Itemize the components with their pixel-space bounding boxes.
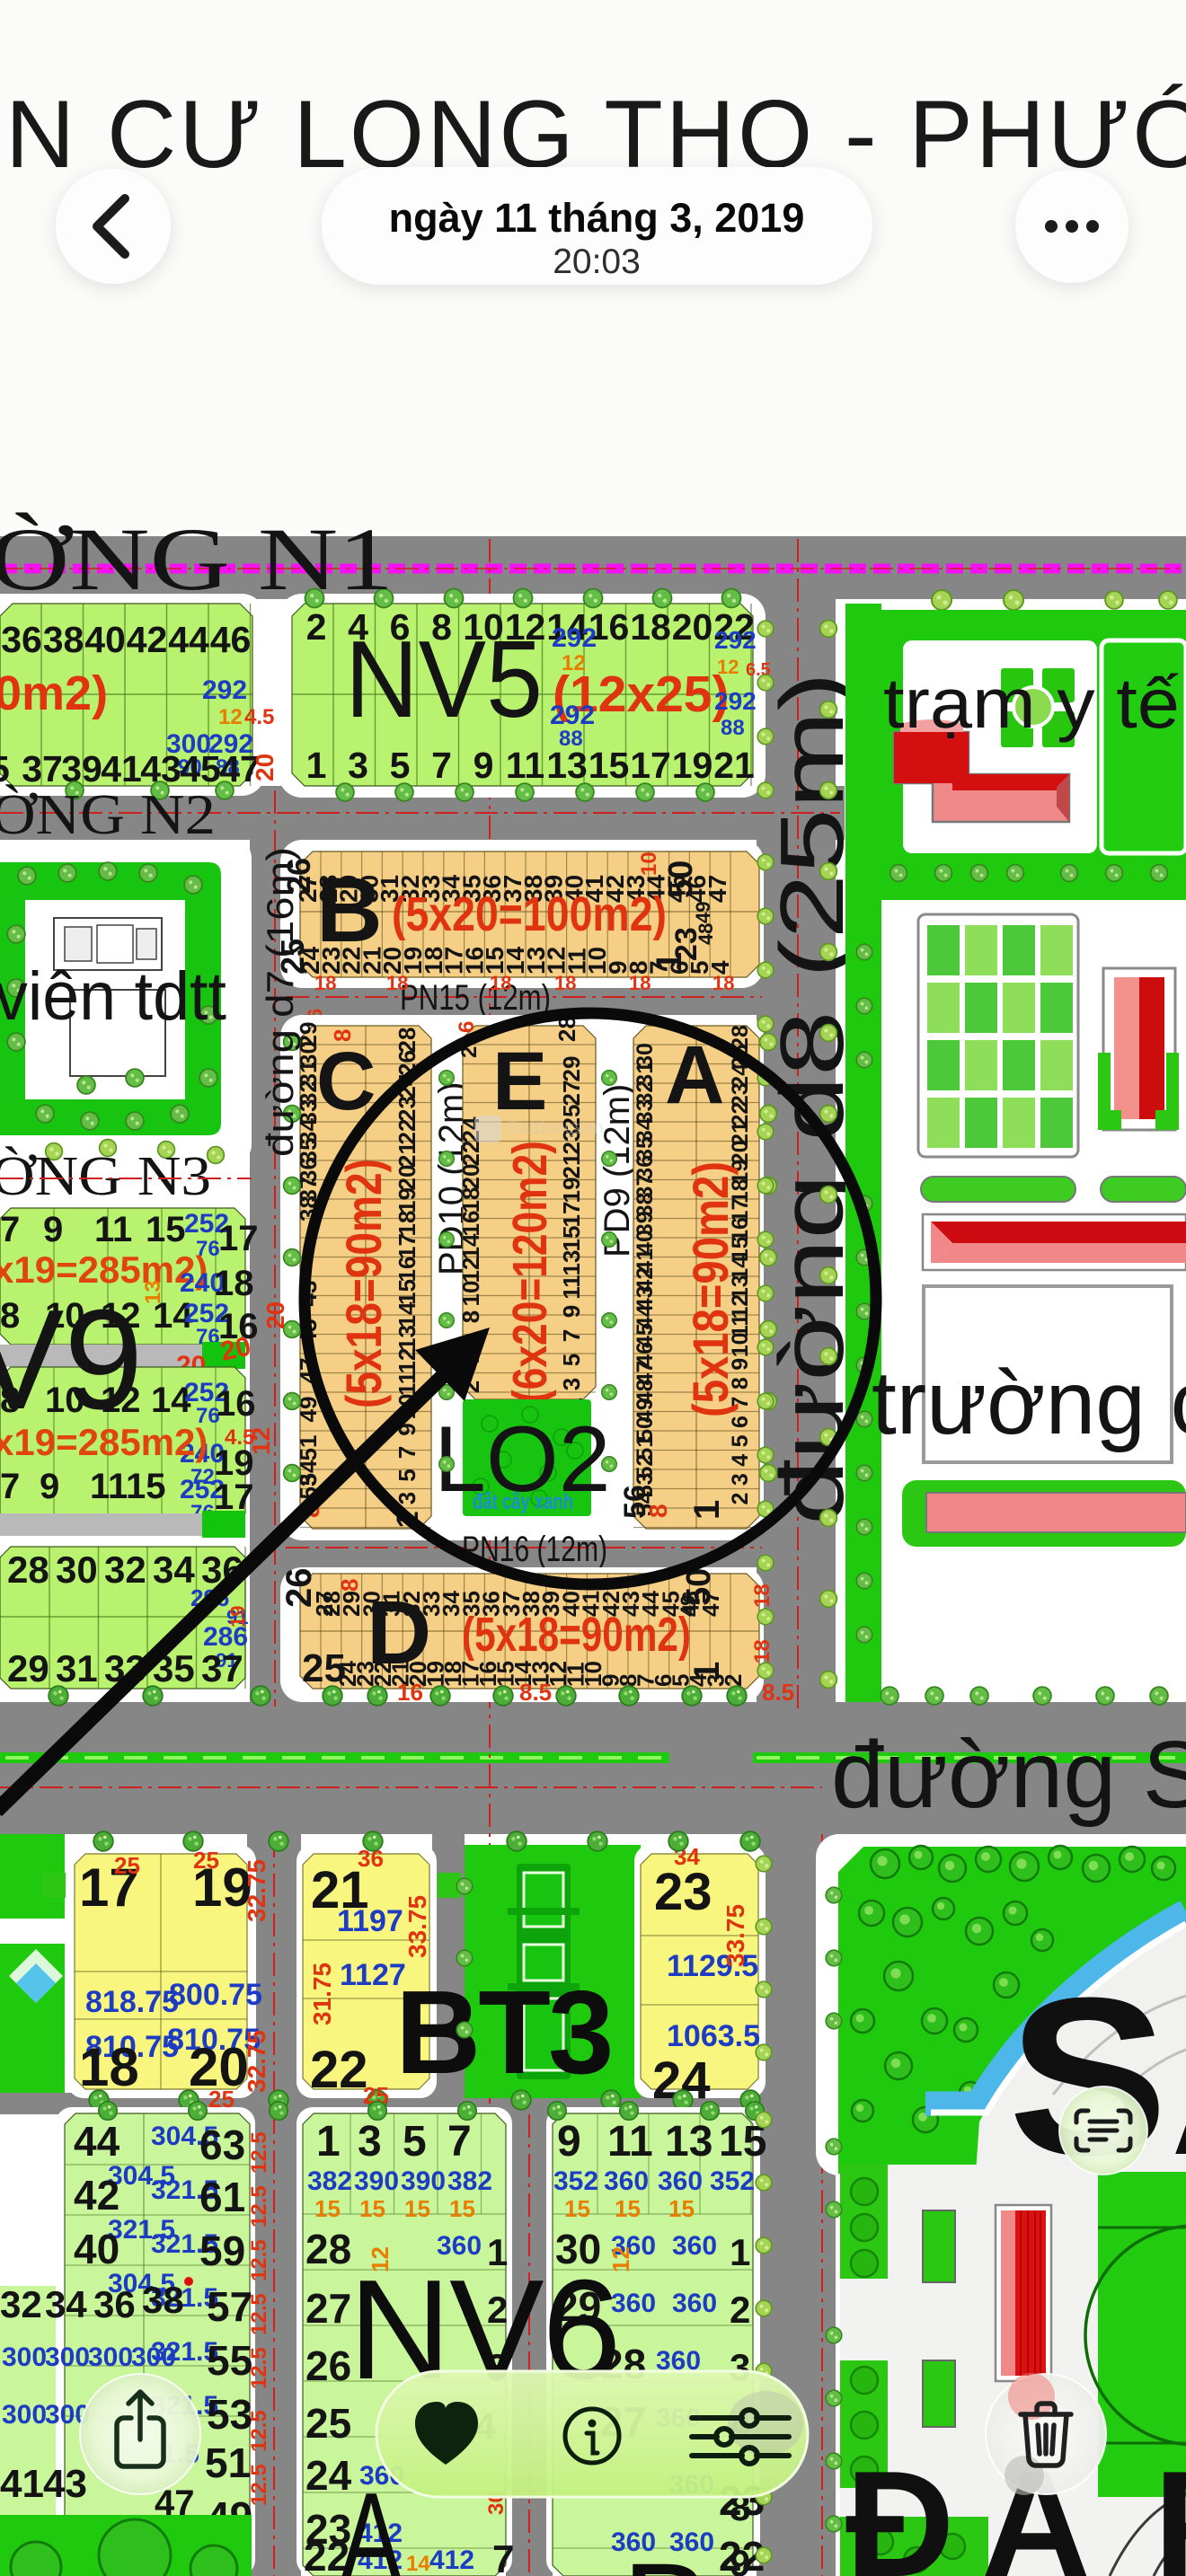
svg-text:33.75: 33.75: [721, 1904, 749, 1967]
svg-text:352: 352: [710, 2166, 755, 2196]
svg-text:28: 28: [7, 1548, 49, 1591]
svg-text:41: 41: [0, 2462, 44, 2506]
svg-text:B: B: [316, 859, 383, 961]
svg-text:88: 88: [721, 716, 745, 740]
svg-text:11: 11: [94, 1210, 132, 1249]
svg-text:16: 16: [397, 1679, 423, 1706]
svg-text:9: 9: [474, 745, 494, 786]
svg-text:5: 5: [403, 2118, 427, 2166]
svg-text:292: 292: [552, 623, 597, 653]
svg-text:19: 19: [558, 1178, 585, 1204]
svg-text:20: 20: [457, 1164, 484, 1190]
svg-text:46: 46: [210, 619, 252, 660]
svg-text:12.5: 12.5: [247, 2347, 271, 2389]
svg-text:12: 12: [218, 705, 243, 729]
svg-text:2: 2: [730, 2289, 750, 2331]
svg-text:18: 18: [79, 2037, 139, 2097]
svg-text:14: 14: [457, 1233, 484, 1259]
svg-text:x19=285m2): x19=285m2): [0, 1421, 208, 1463]
svg-text:18: 18: [554, 972, 576, 994]
svg-text:382: 382: [447, 2166, 492, 2196]
svg-text:32.75: 32.75: [243, 1859, 270, 1922]
svg-text:(5x18=90m2): (5x18=90m2): [462, 1608, 691, 1662]
svg-text:18: 18: [314, 972, 336, 994]
svg-text:51: 51: [205, 2439, 251, 2486]
svg-text:3: 3: [558, 1378, 585, 1390]
svg-text:38: 38: [43, 619, 84, 660]
svg-text:đất cây xanh: đất cây xanh: [473, 1489, 573, 1514]
svg-text:49: 49: [692, 902, 714, 923]
svg-text:48: 48: [695, 923, 717, 945]
svg-text:17: 17: [394, 1233, 420, 1259]
svg-text:17: 17: [558, 1202, 585, 1228]
svg-text:16: 16: [457, 1211, 484, 1237]
svg-text:9: 9: [43, 1210, 63, 1249]
svg-text:43: 43: [43, 2462, 87, 2506]
svg-text:32: 32: [104, 1548, 146, 1591]
svg-text:22: 22: [394, 1119, 420, 1145]
svg-text:viên tdtt: viên tdtt: [0, 958, 226, 1035]
svg-text:42: 42: [127, 619, 168, 660]
svg-text:8: 8: [0, 1381, 20, 1420]
svg-text:29: 29: [7, 1647, 49, 1689]
svg-text:22: 22: [310, 2041, 368, 2099]
svg-text:15: 15: [564, 2195, 590, 2222]
svg-text:18: 18: [490, 972, 511, 994]
svg-text:28: 28: [305, 2226, 351, 2272]
svg-text:(5x20=100m2): (5x20=100m2): [392, 887, 667, 941]
svg-text:31: 31: [56, 1647, 98, 1689]
svg-text:8: 8: [329, 1029, 356, 1042]
svg-text:12.5: 12.5: [247, 2464, 271, 2506]
svg-text:7: 7: [492, 2537, 514, 2576]
svg-text:19: 19: [226, 1606, 249, 1628]
svg-text:17: 17: [630, 745, 671, 786]
svg-text:360: 360: [672, 2231, 717, 2261]
svg-text:B: B: [622, 2535, 712, 2576]
svg-text:15: 15: [589, 745, 630, 786]
svg-text:12.5: 12.5: [247, 2239, 271, 2281]
svg-text:14: 14: [406, 2552, 430, 2576]
svg-text:trường c: trường c: [872, 1353, 1186, 1453]
svg-text:5: 5: [728, 1434, 753, 1447]
svg-text:NV5: NV5: [345, 618, 543, 740]
svg-text:25: 25: [305, 2400, 351, 2447]
svg-text:18: 18: [214, 1264, 254, 1303]
svg-text:20: 20: [394, 1165, 420, 1191]
svg-text:20: 20: [218, 1332, 254, 1367]
svg-text:16: 16: [216, 1384, 256, 1424]
svg-text:18: 18: [394, 1211, 420, 1237]
svg-text:15: 15: [668, 2195, 695, 2222]
svg-text:(5x18=90m2): (5x18=90m2): [682, 1161, 739, 1417]
svg-text:7: 7: [431, 745, 452, 786]
svg-text:300: 300: [131, 2342, 176, 2372]
svg-text:12.5: 12.5: [247, 2410, 271, 2452]
svg-text:11: 11: [558, 1275, 585, 1300]
svg-text:D: D: [367, 1583, 431, 1683]
svg-text:3: 3: [348, 745, 368, 786]
svg-text:44: 44: [168, 619, 209, 660]
svg-text:26: 26: [305, 2342, 351, 2389]
svg-text:18: 18: [630, 606, 671, 648]
svg-text:9: 9: [40, 1467, 59, 1506]
svg-text:9: 9: [557, 2118, 581, 2166]
svg-text:7: 7: [0, 1210, 20, 1249]
svg-text:300: 300: [45, 2342, 90, 2372]
svg-text:15: 15: [404, 2195, 430, 2222]
svg-text:25: 25: [302, 1646, 346, 1690]
svg-text:Batdongsan: Batdongsan: [508, 1118, 604, 1138]
svg-text:44: 44: [74, 2118, 120, 2165]
svg-text:18: 18: [457, 1187, 484, 1213]
svg-text:15: 15: [359, 2195, 385, 2222]
svg-text:2: 2: [306, 606, 327, 648]
svg-text:12.5: 12.5: [247, 2185, 271, 2228]
svg-text:18: 18: [750, 1639, 774, 1663]
svg-text:382: 382: [307, 2166, 352, 2196]
svg-text:20: 20: [251, 754, 279, 781]
svg-text:300: 300: [2, 2342, 47, 2372]
svg-text:53: 53: [207, 2391, 252, 2438]
svg-text:ỜNG N1: ỜNG N1: [0, 509, 394, 609]
svg-text:21: 21: [394, 1142, 420, 1168]
svg-text:23: 23: [654, 1863, 712, 1921]
svg-text:3: 3: [358, 2118, 382, 2166]
svg-text:7: 7: [558, 1329, 585, 1342]
svg-text:10: 10: [45, 1381, 85, 1420]
svg-text:12: 12: [562, 651, 586, 675]
svg-text:12.5: 12.5: [247, 2293, 271, 2335]
svg-text:11: 11: [506, 745, 544, 786]
svg-text:17: 17: [218, 1219, 259, 1258]
svg-text:32.75: 32.75: [243, 2030, 270, 2093]
svg-text:1197: 1197: [337, 1904, 403, 1938]
svg-text:15: 15: [394, 1279, 420, 1305]
svg-text:15: 15: [558, 1226, 585, 1252]
svg-text:12: 12: [717, 656, 739, 678]
svg-text:19: 19: [394, 1187, 420, 1213]
svg-text:12.5: 12.5: [247, 2131, 271, 2174]
svg-text:8: 8: [336, 1579, 363, 1592]
svg-text:2: 2: [728, 1493, 753, 1505]
svg-text:18: 18: [712, 972, 734, 994]
svg-text:5: 5: [394, 1469, 420, 1481]
svg-text:38: 38: [142, 2279, 184, 2321]
svg-text:11: 11: [90, 1467, 128, 1506]
svg-text:15: 15: [146, 1210, 186, 1249]
svg-text:28: 28: [394, 1028, 420, 1054]
svg-text:292: 292: [202, 675, 247, 705]
svg-text:31.75: 31.75: [308, 1963, 336, 2025]
svg-text:13: 13: [558, 1250, 585, 1276]
svg-text:33.75: 33.75: [403, 1895, 431, 1958]
svg-text:27: 27: [305, 2285, 351, 2332]
svg-text:1: 1: [316, 2118, 341, 2166]
svg-text:30: 30: [56, 1548, 98, 1591]
svg-text:12: 12: [247, 1427, 275, 1455]
svg-text:360: 360: [658, 2166, 703, 2196]
svg-text:25: 25: [208, 2086, 235, 2113]
svg-text:13: 13: [546, 745, 588, 786]
svg-text:63: 63: [199, 2122, 245, 2168]
svg-text:ngày 11 tháng 3, 2019: ngày 11 tháng 3, 2019: [389, 195, 805, 241]
svg-text:390: 390: [401, 2166, 446, 2196]
svg-text:15: 15: [314, 2195, 341, 2222]
svg-text:5: 5: [390, 745, 411, 786]
svg-text:15: 15: [126, 1467, 166, 1506]
svg-text:(5x18=90m2): (5x18=90m2): [335, 1159, 392, 1408]
svg-text:0m2): 0m2): [0, 666, 108, 720]
svg-text:34: 34: [153, 1548, 195, 1591]
svg-text:12: 12: [457, 1257, 484, 1284]
svg-text:16: 16: [394, 1257, 420, 1283]
svg-text:34: 34: [45, 2283, 87, 2325]
svg-text:4.5: 4.5: [244, 705, 274, 729]
svg-text:59: 59: [199, 2228, 245, 2274]
svg-text:25: 25: [114, 1852, 140, 1879]
svg-text:300: 300: [2, 2400, 47, 2430]
svg-text:412: 412: [429, 2545, 474, 2575]
svg-text:15: 15: [449, 2195, 475, 2222]
svg-text:A: A: [1170, 1951, 1186, 2201]
svg-text:8: 8: [644, 1504, 672, 1518]
svg-text:E: E: [492, 1036, 547, 1127]
svg-text:292: 292: [714, 687, 757, 715]
svg-text:PD9 (12m): PD9 (12m): [597, 1084, 637, 1257]
svg-text:8: 8: [457, 1310, 484, 1323]
svg-text:13: 13: [665, 2118, 712, 2166]
svg-text:1063.5: 1063.5: [667, 2019, 760, 2053]
svg-text:51: 51: [295, 1435, 322, 1461]
svg-text:29: 29: [558, 1056, 585, 1082]
svg-text:A: A: [340, 2466, 403, 2576]
svg-text:23: 23: [394, 1096, 420, 1122]
svg-text:47: 47: [704, 875, 731, 903]
svg-text:7: 7: [0, 1467, 20, 1506]
svg-text:4: 4: [728, 1454, 753, 1467]
svg-text:19: 19: [672, 745, 713, 786]
svg-text:9: 9: [558, 1305, 585, 1318]
svg-text:18: 18: [629, 972, 651, 994]
svg-text:1: 1: [687, 1500, 727, 1520]
svg-text:trạm y tế: trạm y tế: [883, 663, 1180, 743]
svg-text:27: 27: [558, 1081, 585, 1107]
svg-text:352: 352: [553, 2166, 598, 2196]
svg-text:13: 13: [394, 1325, 420, 1351]
svg-text:đường So: đường So: [831, 1722, 1186, 1828]
svg-text:8.5: 8.5: [519, 1679, 552, 1706]
svg-text:360: 360: [604, 2166, 649, 2196]
svg-text:(6x20=120m2): (6x20=120m2): [503, 1141, 557, 1403]
svg-text:292: 292: [714, 626, 757, 654]
svg-text:10: 10: [637, 851, 661, 876]
svg-text:9: 9: [730, 2542, 750, 2576]
svg-text:37: 37: [201, 1647, 243, 1689]
svg-text:42: 42: [74, 2172, 119, 2219]
svg-text:12: 12: [394, 1348, 420, 1374]
svg-text:11: 11: [607, 2118, 653, 2166]
svg-text:21: 21: [558, 1153, 585, 1179]
svg-text:1: 1: [306, 745, 327, 786]
svg-text:8.5: 8.5: [762, 1679, 794, 1706]
svg-text:360: 360: [672, 2289, 717, 2318]
svg-text:40: 40: [84, 619, 126, 660]
svg-text:300: 300: [88, 2342, 133, 2372]
svg-text:10: 10: [457, 1281, 484, 1307]
svg-text:1: 1: [687, 1662, 727, 1681]
svg-text:7: 7: [394, 1446, 420, 1459]
svg-text:32: 32: [0, 2283, 42, 2325]
svg-text:36: 36: [1, 619, 42, 660]
svg-text:21: 21: [713, 745, 755, 786]
svg-text:55: 55: [207, 2337, 252, 2384]
svg-text:P: P: [1154, 2439, 1186, 2576]
svg-text:13: 13: [141, 1280, 165, 1304]
svg-text:50: 50: [662, 860, 700, 898]
svg-text:27: 27: [311, 1591, 338, 1617]
svg-text:20:03: 20:03: [553, 243, 641, 281]
svg-text:818.75: 818.75: [85, 1985, 179, 2019]
svg-text:36: 36: [93, 2283, 136, 2325]
svg-text:20: 20: [261, 1301, 289, 1329]
svg-text:18: 18: [750, 1584, 774, 1608]
svg-text:15: 15: [615, 2195, 641, 2222]
svg-text:PN15 (12m): PN15 (12m): [400, 978, 551, 1018]
svg-text:5: 5: [558, 1354, 585, 1366]
svg-text:800.75: 800.75: [169, 1978, 262, 2012]
svg-text:390: 390: [354, 2166, 399, 2196]
svg-text:61: 61: [199, 2174, 245, 2220]
svg-text:18: 18: [386, 972, 408, 994]
svg-text:57: 57: [207, 2283, 252, 2330]
svg-text:ỜNG N2: ỜNG N2: [0, 782, 216, 846]
svg-text:BT3: BT3: [395, 1966, 611, 2098]
svg-text:1: 1: [730, 2231, 750, 2273]
svg-text:7: 7: [447, 2118, 472, 2166]
svg-text:3: 3: [728, 1473, 753, 1486]
svg-text:12: 12: [101, 1381, 141, 1420]
svg-text:40: 40: [74, 2226, 119, 2272]
svg-text:đường d7 (16m): đường d7 (16m): [259, 847, 301, 1157]
svg-text:14: 14: [394, 1301, 420, 1328]
svg-text:20: 20: [672, 606, 713, 648]
svg-text:22: 22: [457, 1141, 484, 1167]
svg-text:ỜNG N3: ỜNG N3: [0, 1146, 211, 1207]
